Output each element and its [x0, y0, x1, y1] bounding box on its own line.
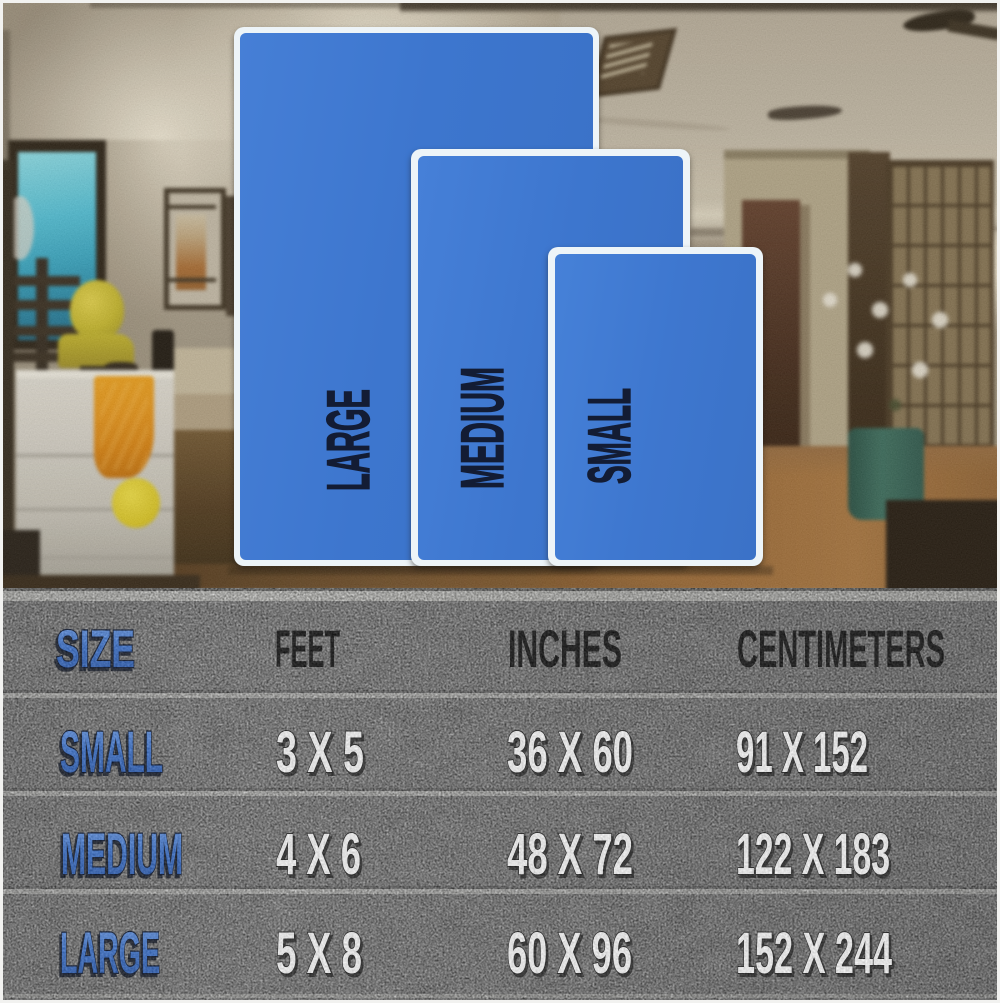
svg-text:SMALL: SMALL [576, 388, 643, 484]
svg-text:MEDIUM: MEDIUM [449, 367, 516, 489]
svg-text:LARGE: LARGE [315, 389, 382, 491]
